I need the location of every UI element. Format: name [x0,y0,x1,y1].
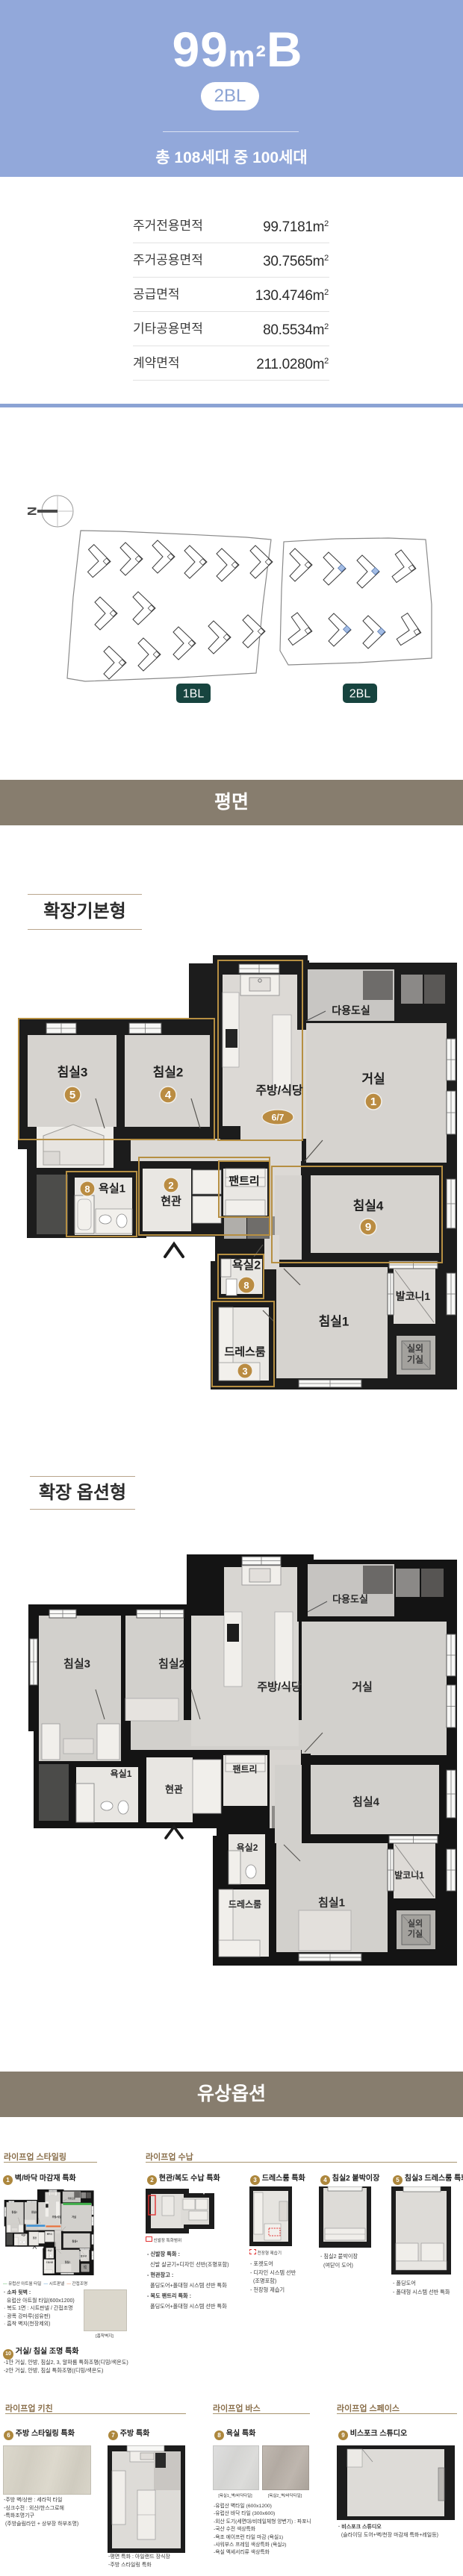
svg-text:8: 8 [243,1280,249,1291]
svg-text:침실3: 침실3 [58,1065,88,1080]
svg-text:침실1: 침실1 [319,1314,349,1329]
svg-text:욕실1: 욕실1 [99,1183,125,1195]
svg-text:실외: 실외 [408,1918,423,1928]
svg-text:다용도실: 다용도실 [332,1004,370,1016]
svg-text:4: 4 [165,1089,172,1101]
svg-text:3: 3 [242,1366,247,1377]
svg-text:팬트리: 팬트리 [229,1175,259,1188]
svg-text:침실4: 침실4 [353,1198,384,1213]
svg-text:침실3: 침실3 [63,1658,90,1671]
svg-text:침실2: 침실2 [153,1065,184,1080]
svg-text:발코니1: 발코니1 [394,1869,424,1881]
svg-text:거실: 거실 [361,1072,385,1087]
svg-text:드레스룸: 드레스룸 [229,1898,261,1910]
svg-text:5: 5 [69,1089,75,1101]
svg-text:주방/식당: 주방/식당 [257,1681,302,1694]
svg-text:9: 9 [365,1221,371,1234]
svg-text:2: 2 [168,1180,173,1191]
svg-text:드레스룸: 드레스룸 [224,1346,265,1359]
svg-text:발코니1: 발코니1 [396,1290,431,1302]
svg-text:팬트리: 팬트리 [232,1763,257,1775]
svg-text:1: 1 [370,1095,376,1108]
svg-text:2BL: 2BL [349,688,371,701]
svg-text:거실: 거실 [352,1681,373,1694]
svg-text:현관: 현관 [161,1195,181,1208]
svg-text:주방/식당: 주방/식당 [255,1084,303,1098]
svg-text:8: 8 [84,1184,90,1195]
svg-text:현관: 현관 [165,1784,183,1795]
svg-text:기실: 기실 [408,1928,423,1939]
svg-text:기실: 기실 [407,1354,423,1365]
svg-text:다용도실: 다용도실 [332,1594,368,1605]
svg-text:N: N [25,507,40,516]
svg-text:욕실2: 욕실2 [232,1259,261,1272]
svg-text:욕실2: 욕실2 [237,1842,258,1853]
svg-text:6/7: 6/7 [272,1113,285,1123]
svg-text:침실2: 침실2 [158,1658,185,1671]
svg-text:실외: 실외 [407,1342,423,1354]
svg-text:침실1: 침실1 [318,1897,345,1910]
svg-text:1BL: 1BL [183,688,205,701]
svg-text:욕실1: 욕실1 [111,1768,132,1779]
svg-text:침실4: 침실4 [352,1796,380,1809]
